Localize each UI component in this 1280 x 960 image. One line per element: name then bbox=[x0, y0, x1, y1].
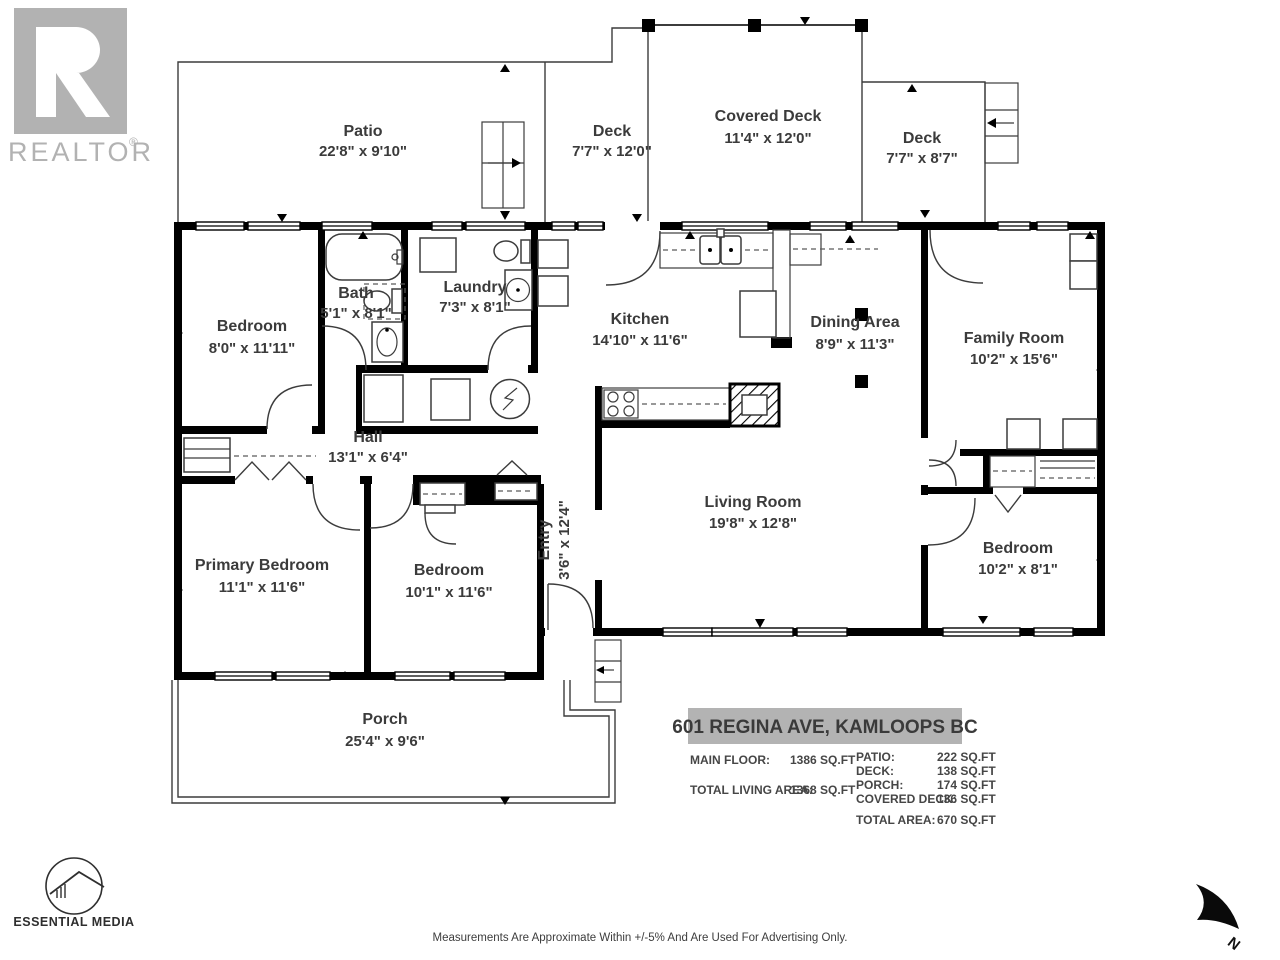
area-summary: MAIN FLOOR: 1386 SQ.FT TOTAL LIVING AREA… bbox=[690, 750, 996, 827]
patio-outline bbox=[178, 28, 648, 226]
room-label-covered-deck: Covered Deck 11'4" x 12'0" bbox=[715, 108, 822, 147]
window bbox=[1034, 628, 1073, 636]
room-dims: 3'6" x 12'4" bbox=[556, 500, 573, 580]
room-dims: 11'4" x 12'0" bbox=[724, 130, 811, 147]
realtor-registered-icon: ® bbox=[129, 135, 138, 149]
floorplan-canvas: REALTOR ® bbox=[0, 0, 1280, 960]
room-dims: 22'8" x 9'10" bbox=[319, 143, 407, 160]
stat-value: 1368 SQ.FT bbox=[790, 783, 856, 797]
kitchen-exterior-door bbox=[606, 231, 660, 285]
stat-value: 136 SQ.FT bbox=[937, 792, 996, 806]
room-dims: 10'2" x 8'1" bbox=[978, 561, 1058, 578]
primary-bedroom-door bbox=[313, 484, 360, 530]
window bbox=[432, 222, 462, 230]
stat-label: TOTAL AREA: bbox=[856, 813, 936, 827]
room-name: Covered Deck bbox=[715, 108, 822, 125]
room-label-porch: Porch 25'4" x 9'6" bbox=[345, 711, 425, 750]
window bbox=[852, 222, 898, 230]
room-name: Laundry bbox=[443, 279, 506, 296]
stat-label: MAIN FLOOR: bbox=[690, 753, 770, 767]
room-name: Deck bbox=[593, 123, 631, 140]
room-dims: 8'9" x 11'3" bbox=[816, 336, 895, 353]
washer-icon bbox=[420, 238, 456, 272]
window bbox=[682, 222, 768, 230]
room-name: Bath bbox=[338, 285, 374, 302]
window bbox=[276, 672, 330, 680]
address-banner: 601 REGINA AVE, KAMLOOPS BC bbox=[672, 708, 978, 744]
bedroom2-door bbox=[370, 484, 413, 528]
room-dims: 14'10" x 11'6" bbox=[592, 332, 688, 349]
room-name: Patio bbox=[343, 123, 382, 140]
window bbox=[943, 628, 1020, 636]
room-label-bedroom-tl: Bedroom 8'0" x 11'11" bbox=[209, 318, 295, 357]
window bbox=[663, 628, 712, 636]
bedroom2-closet-door bbox=[425, 513, 456, 544]
stat-label: PATIO: bbox=[856, 750, 895, 764]
furnace-box bbox=[431, 379, 470, 420]
room-dims: 19'8" x 12'8" bbox=[709, 515, 797, 532]
north-arrow-icon: N bbox=[1196, 884, 1243, 954]
disclaimer-text: Measurements Are Approximate Within +/-5… bbox=[433, 932, 848, 944]
house-roof-icon bbox=[50, 872, 104, 894]
room-dims: 7'3" x 8'1" bbox=[439, 299, 510, 316]
kitchen-pantry bbox=[538, 240, 568, 306]
room-name: Entry bbox=[536, 519, 553, 560]
room-dims: 10'2" x 15'6" bbox=[970, 351, 1058, 368]
bath-sink-icon bbox=[372, 322, 403, 362]
fridge-icon bbox=[740, 291, 776, 337]
stat-value: 138 SQ.FT bbox=[937, 764, 996, 778]
dining-buffet bbox=[790, 234, 878, 265]
window bbox=[810, 222, 846, 230]
laundry-door bbox=[488, 326, 531, 370]
kitchen-counter-sink bbox=[660, 229, 773, 268]
stat-label: PORCH: bbox=[856, 778, 903, 792]
window bbox=[248, 222, 300, 230]
room-name: Dining Area bbox=[810, 314, 899, 331]
family-room-door bbox=[930, 230, 983, 283]
essential-media-wordmark: ESSENTIAL MEDIA bbox=[13, 915, 134, 929]
room-label-living: Living Room 19'8" x 12'8" bbox=[705, 494, 802, 532]
stat-value: 174 SQ.FT bbox=[937, 778, 996, 792]
room-label-patio: Patio 22'8" x 9'10" bbox=[319, 123, 407, 160]
room-label-primary-bedroom: Primary Bedroom 11'1" x 11'6" bbox=[195, 557, 329, 596]
window bbox=[712, 628, 793, 636]
realtor-logo: REALTOR ® bbox=[8, 8, 154, 167]
stat-label: DECK: bbox=[856, 764, 894, 778]
room-label-deck-right: Deck 7'7" x 8'7" bbox=[886, 130, 957, 167]
front-door bbox=[548, 584, 593, 630]
window bbox=[578, 222, 603, 230]
room-dims: 5'1" x 8'1" bbox=[320, 305, 391, 322]
entry-steps bbox=[595, 640, 621, 702]
bathtub-icon bbox=[326, 234, 403, 280]
room-name: Bedroom bbox=[414, 562, 484, 579]
room-dims: 25'4" x 9'6" bbox=[345, 733, 425, 750]
room-label-dining: Dining Area 8'9" x 11'3" bbox=[810, 314, 899, 353]
room-name: Bedroom bbox=[217, 318, 287, 335]
bifold-door-glyphs bbox=[235, 461, 1021, 512]
room-name: Deck bbox=[903, 130, 941, 147]
room-name: Living Room bbox=[705, 494, 802, 511]
stat-value: 1386 SQ.FT bbox=[790, 753, 856, 767]
linen-closet bbox=[364, 375, 403, 422]
room-label-bedroom2: Bedroom 10'1" x 11'6" bbox=[405, 562, 492, 601]
stove-counter bbox=[602, 388, 730, 420]
room-labels: Patio 22'8" x 9'10" Deck 7'7" x 12'0" Co… bbox=[195, 108, 1064, 750]
room-dims: 7'7" x 12'0" bbox=[572, 143, 652, 160]
room-label-hall: Hall 13'1" x 6'4" bbox=[328, 429, 408, 466]
stat-value: 670 SQ.FT bbox=[937, 813, 996, 827]
room-label-bedroom3: Bedroom 10'2" x 8'1" bbox=[978, 540, 1058, 578]
window bbox=[196, 222, 244, 230]
bedroom-tl-door bbox=[267, 385, 312, 429]
stat-value: 222 SQ.FT bbox=[937, 750, 996, 764]
window bbox=[552, 222, 575, 230]
essential-media-logo: ESSENTIAL MEDIA bbox=[13, 858, 134, 929]
room-dims: 11'1" x 11'6" bbox=[219, 579, 305, 596]
room-name: Kitchen bbox=[611, 311, 670, 328]
window bbox=[998, 222, 1030, 230]
room-name: Hall bbox=[353, 429, 382, 446]
walls-layer bbox=[174, 222, 1105, 680]
room-dims: 7'7" x 8'7" bbox=[886, 150, 957, 167]
bath-door bbox=[322, 326, 366, 370]
living-closet-french-doors bbox=[929, 440, 956, 486]
window bbox=[466, 222, 525, 230]
address-text: 601 REGINA AVE, KAMLOOPS BC bbox=[672, 717, 978, 738]
hearth-hatched bbox=[730, 384, 779, 426]
window bbox=[322, 222, 372, 230]
room-label-laundry: Laundry 7'3" x 8'1" bbox=[439, 279, 510, 316]
patio-stairs bbox=[482, 122, 524, 208]
room-dims: 10'1" x 11'6" bbox=[405, 584, 492, 601]
room-dims: 8'0" x 11'11" bbox=[209, 340, 295, 357]
room-name: Primary Bedroom bbox=[195, 557, 329, 574]
window bbox=[1037, 222, 1068, 230]
window bbox=[395, 672, 450, 680]
floorplan-page: REALTOR ® bbox=[0, 0, 1280, 960]
room-label-deck-left: Deck 7'7" x 12'0" bbox=[572, 123, 652, 160]
window bbox=[215, 672, 272, 680]
room-name: Porch bbox=[362, 711, 407, 728]
room-dims: 13'1" x 6'4" bbox=[328, 449, 408, 466]
room-label-kitchen: Kitchen 14'10" x 11'6" bbox=[592, 311, 688, 349]
laundry-toilet-icon bbox=[494, 240, 530, 263]
bedroom3-closets bbox=[990, 456, 1095, 487]
window bbox=[454, 672, 505, 680]
room-name: Bedroom bbox=[983, 540, 1053, 557]
dimension-arrows bbox=[175, 17, 1104, 805]
window bbox=[797, 628, 847, 636]
room-label-family: Family Room 10'2" x 15'6" bbox=[964, 330, 1064, 368]
bedroom3-door bbox=[928, 498, 975, 545]
room-name: Family Room bbox=[964, 330, 1064, 347]
north-label: N bbox=[1224, 934, 1243, 954]
water-heater-icon bbox=[491, 380, 530, 419]
